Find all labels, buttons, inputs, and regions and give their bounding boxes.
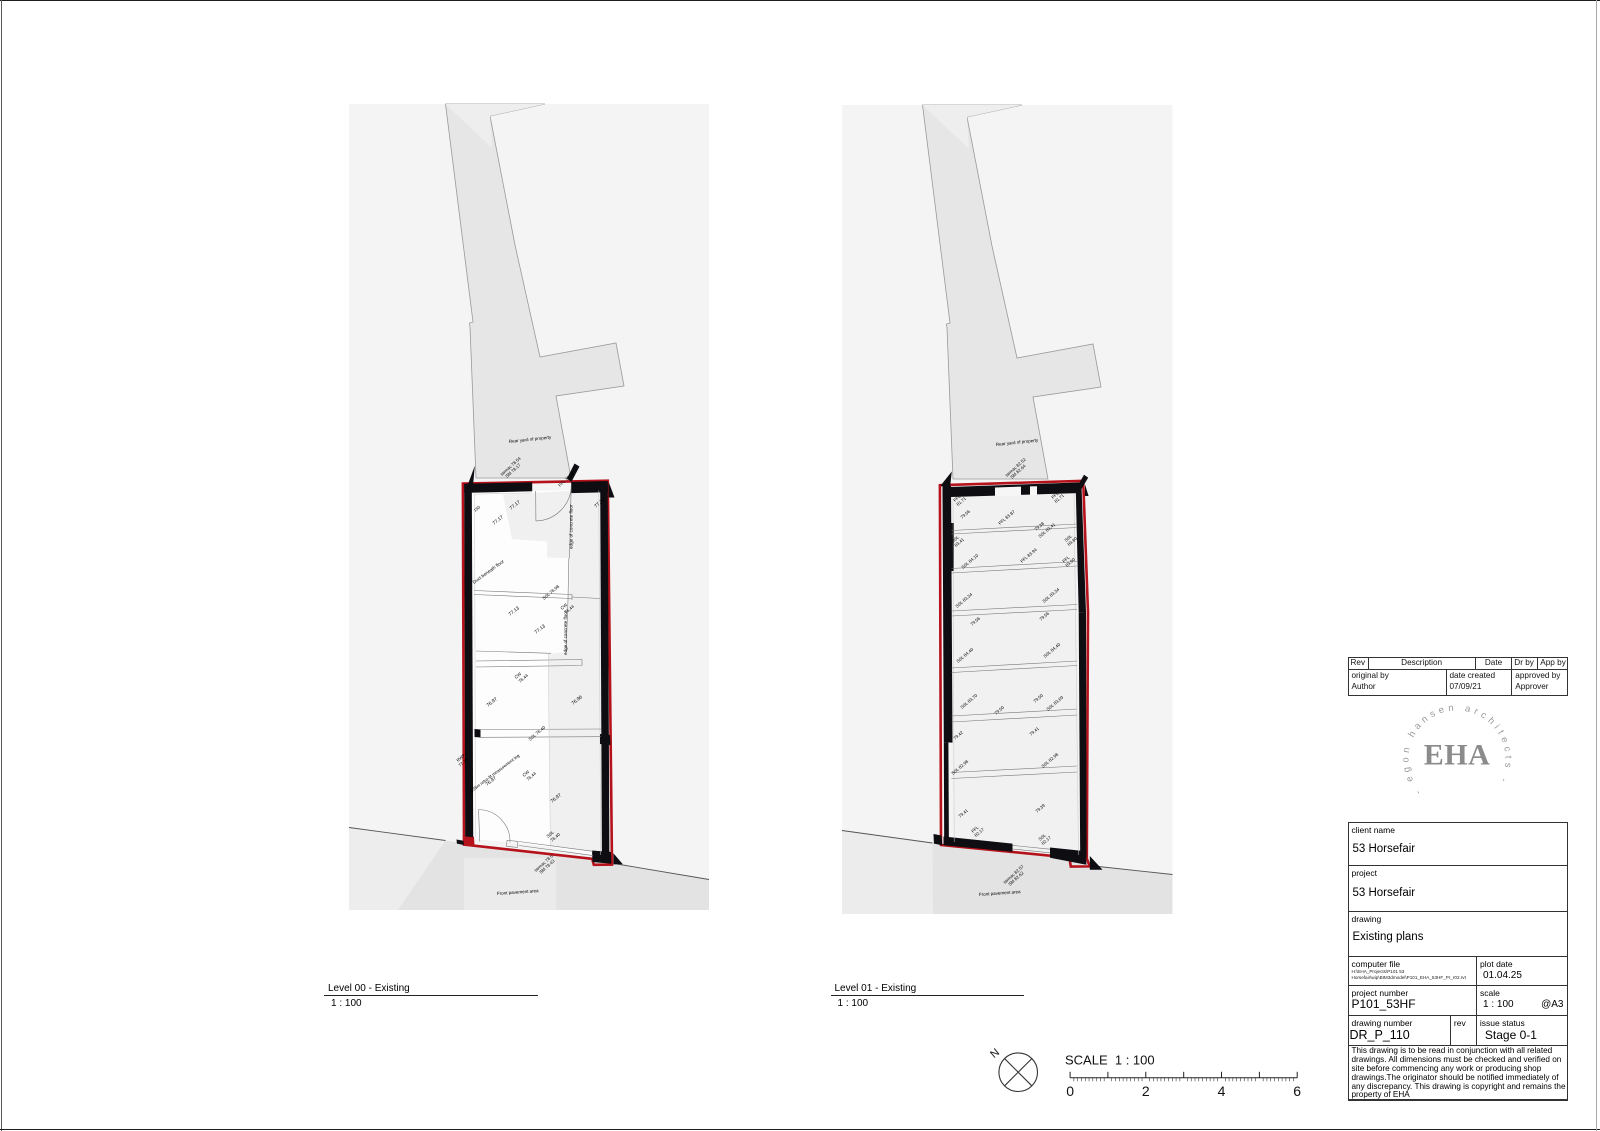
svg-text:SCALE 1 : 100: SCALE 1 : 100 — [1065, 1053, 1155, 1068]
svg-text:N: N — [988, 1046, 1002, 1060]
svg-text:2: 2 — [1142, 1083, 1150, 1099]
svg-text:edge of concrete floor: edge of concrete floor — [563, 610, 568, 655]
svg-text:edge of concrete floor: edge of concrete floor — [569, 504, 574, 549]
svg-text:EHA: EHA — [1424, 739, 1491, 772]
svg-text:0: 0 — [1066, 1083, 1074, 1099]
svg-text:6: 6 — [1293, 1083, 1301, 1099]
svg-text:4: 4 — [1218, 1083, 1226, 1099]
